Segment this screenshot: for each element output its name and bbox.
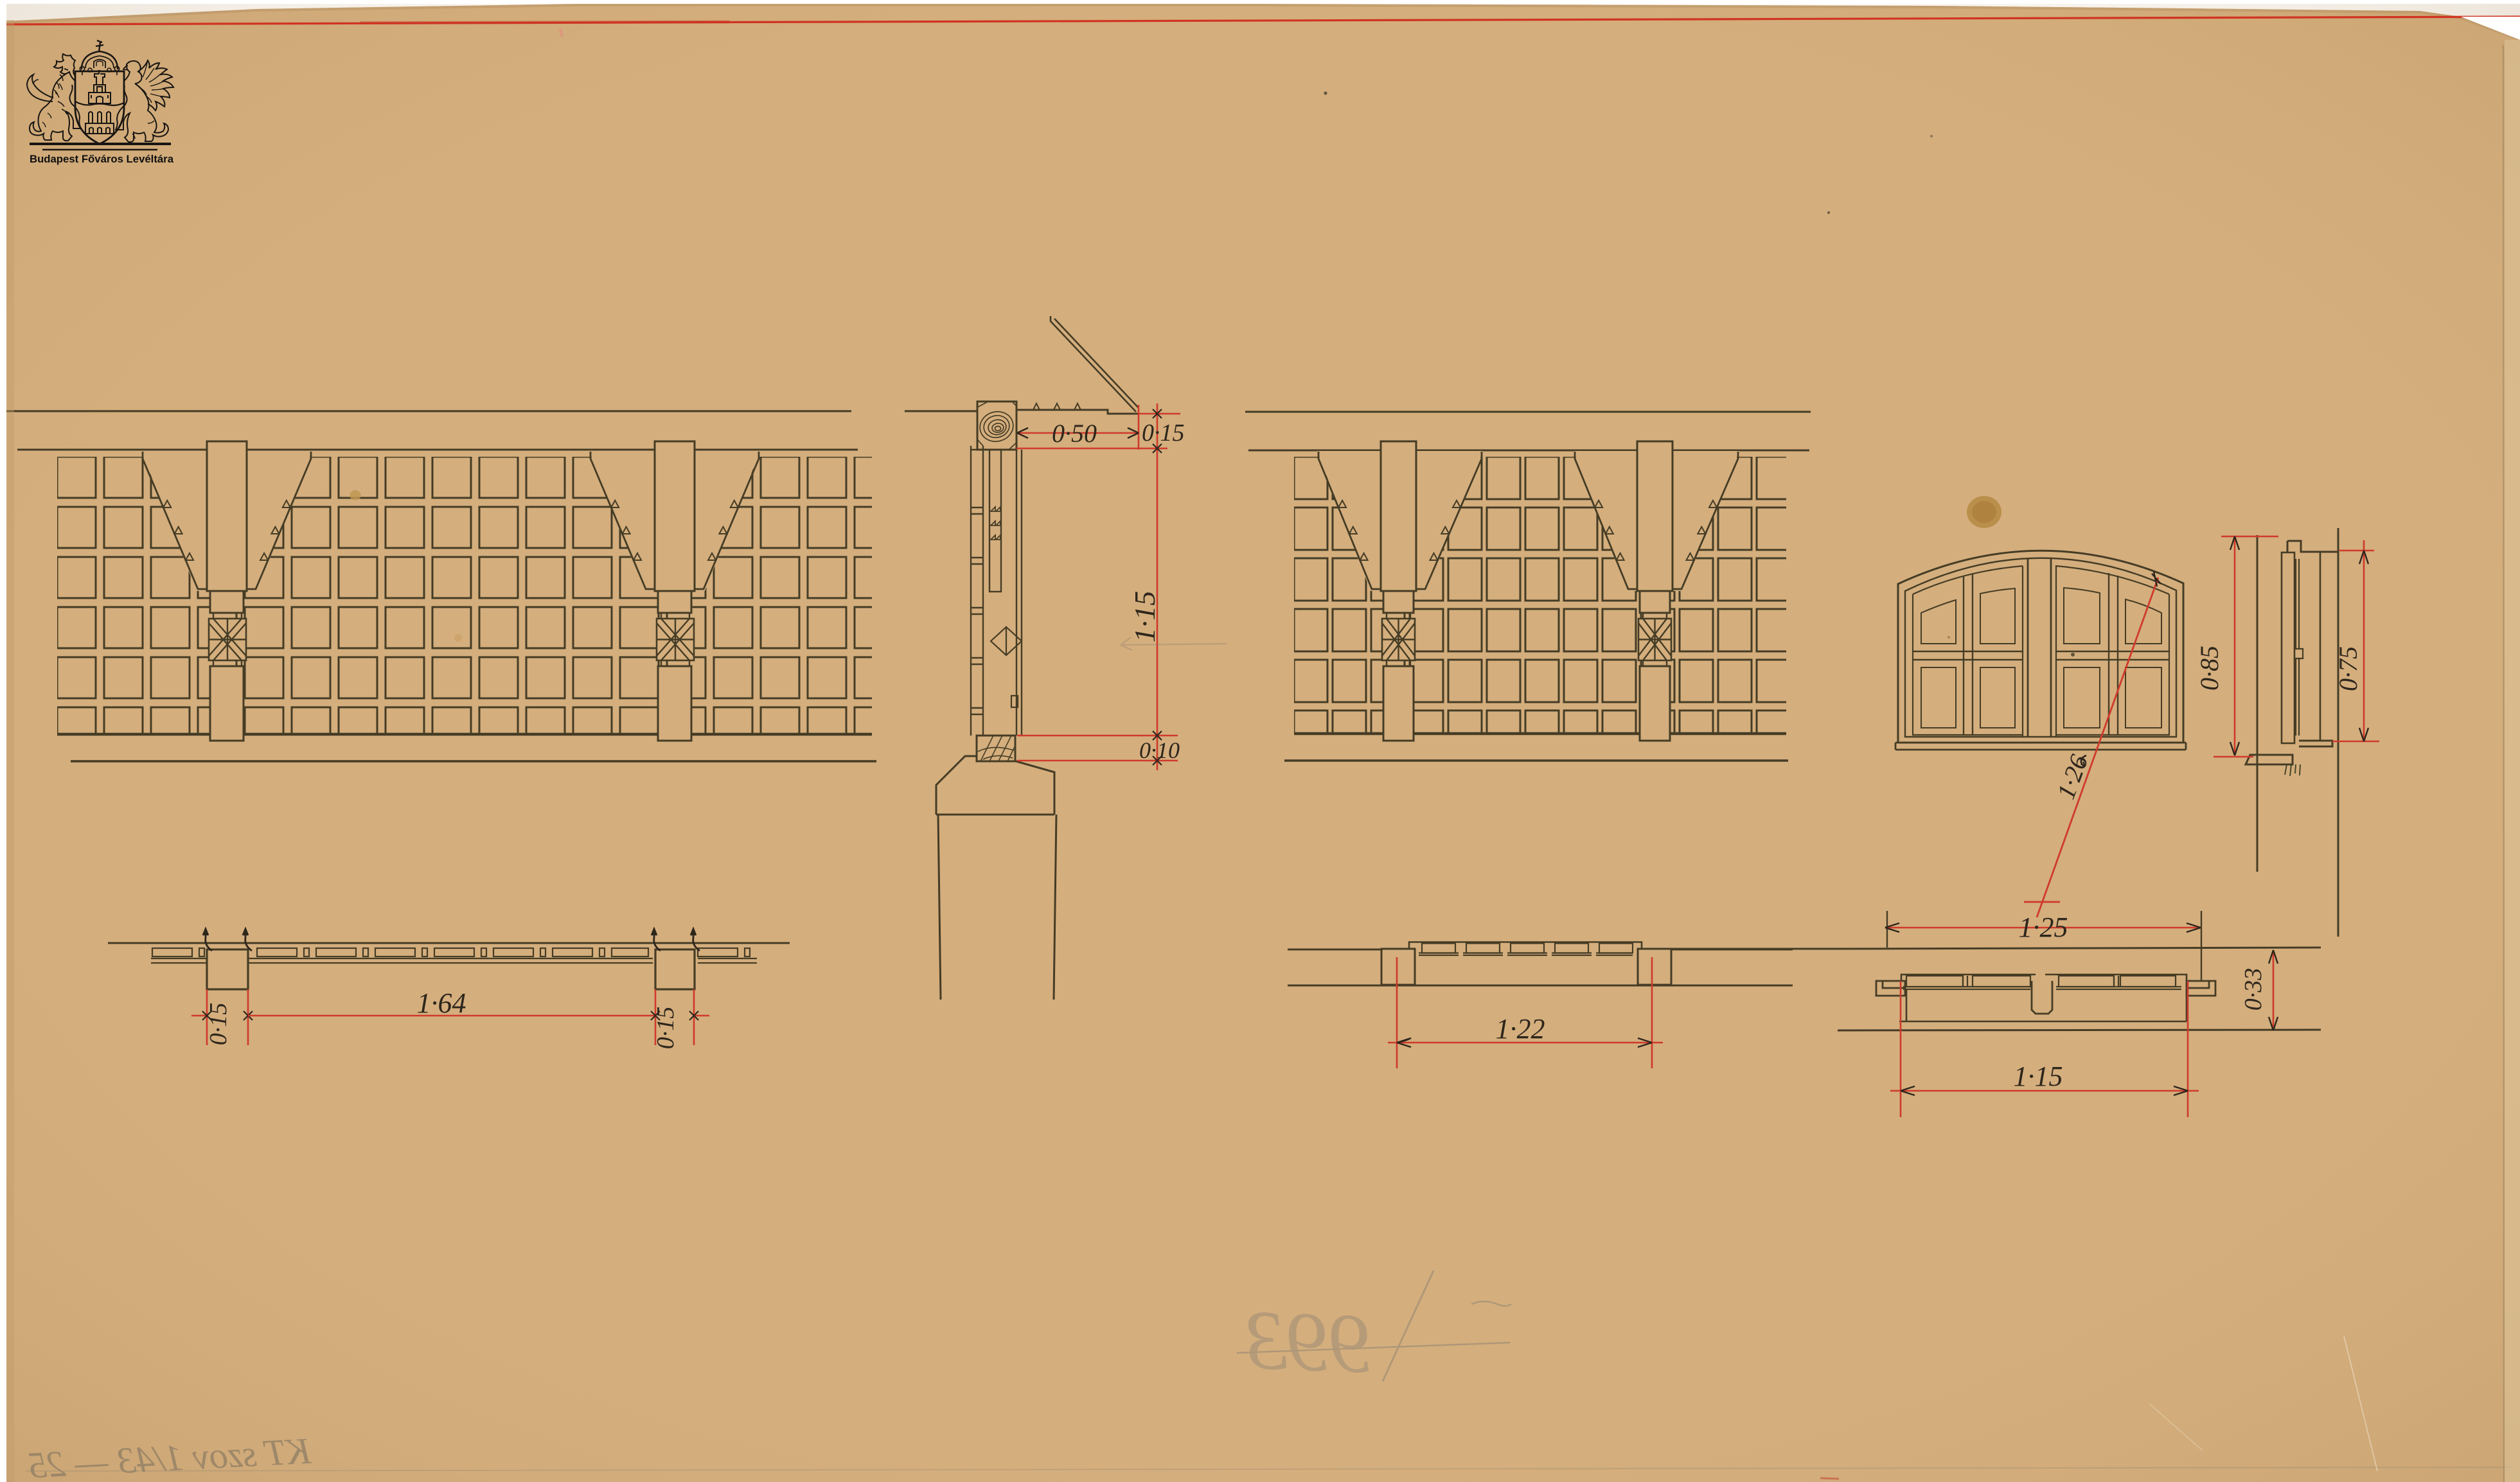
svg-text:0·33: 0·33	[2240, 968, 2267, 1011]
svg-text:0·75: 0·75	[2334, 646, 2363, 691]
svg-text:1·15: 1·15	[1128, 591, 1161, 643]
svg-text:1·25: 1·25	[2019, 912, 2068, 943]
svg-text:1·22: 1·22	[1496, 1013, 1545, 1045]
svg-text:0·10: 0·10	[1139, 737, 1180, 763]
svg-text:993: 993	[1243, 1292, 1374, 1391]
svg-text:1·15: 1·15	[2014, 1061, 2063, 1092]
svg-text:0·50: 0·50	[1052, 419, 1097, 448]
svg-text:0·15: 0·15	[1142, 419, 1185, 446]
svg-text:1·64: 1·64	[417, 987, 466, 1019]
svg-text:0·85: 0·85	[2195, 646, 2224, 691]
svg-text:Budapest Főváros Levéltára: Budapest Főváros Levéltára	[30, 154, 174, 165]
svg-text:0·15: 0·15	[652, 1007, 679, 1050]
svg-text:0·15: 0·15	[205, 1003, 232, 1046]
